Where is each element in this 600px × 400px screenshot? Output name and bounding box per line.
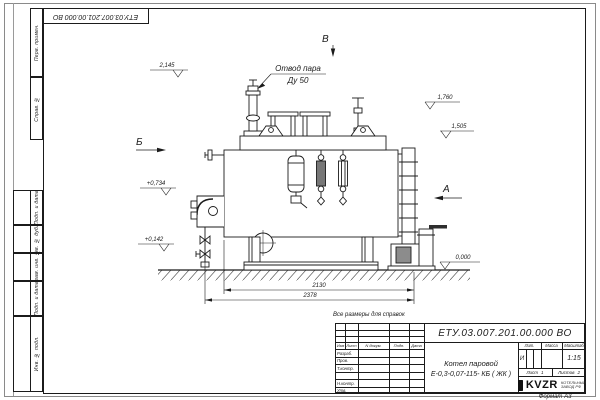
- elevation-1505: 1,505: [440, 124, 474, 138]
- left-wall-nozzle: [205, 150, 224, 160]
- doc-number: ЕТУ.03.007.201.00.000 ВО: [424, 324, 586, 342]
- drain-valves: [196, 227, 210, 267]
- elevation-text: +0,734: [147, 181, 166, 187]
- kvzr-logo-text: KVZR: [526, 379, 558, 391]
- sheets-cell: Листов 2: [552, 368, 586, 376]
- col-header-podp: Подп.: [389, 342, 409, 349]
- sheet-value: 1: [541, 370, 544, 375]
- elevation-0142: +0,142: [138, 237, 174, 251]
- grid-line: [409, 324, 410, 394]
- col-header-docnum: N докум.: [358, 342, 389, 349]
- view-arrow-left: Б: [136, 137, 166, 152]
- view-arrow-right: А: [434, 184, 462, 200]
- col-header-data: Дата: [409, 342, 424, 349]
- row-utv: Утв.: [336, 387, 359, 394]
- kvzr-logo-icon: [518, 380, 523, 391]
- elevation-text: 2,145: [158, 63, 175, 69]
- steam-outlet-label-2: Ду 50: [287, 76, 309, 85]
- product-name-cell: Котел паровой Е-0,3-0,07-115- КБ ( ЖК ): [424, 342, 518, 394]
- drawing-sheet: ЕТУ.03.007.201.00.000 ВО Перв. примен. С…: [0, 0, 600, 400]
- elevation-2145: 2,145: [150, 63, 188, 77]
- scale-header: Масштаб: [562, 342, 586, 349]
- sheet-cell: Лист 1: [518, 368, 552, 376]
- sheets-label: Листов: [558, 370, 574, 375]
- grid-line: [389, 324, 390, 394]
- title-block: Изм Лист N докум. Подп. Дата Разраб. Про…: [335, 323, 585, 393]
- product-name-line1: Котел паровой: [444, 359, 498, 368]
- view-letter: А: [442, 184, 450, 195]
- row-tkontr: Т.контр.: [336, 364, 359, 372]
- elevation-text: 0,000: [455, 255, 471, 261]
- view-letter: Б: [136, 137, 143, 148]
- boiler-body: [224, 136, 398, 237]
- row-razrab: Разраб.: [336, 349, 359, 357]
- sheet-label: Лист: [526, 370, 538, 375]
- logo-cell: KVZR КОТЕЛЬНЫЙ ЗАВОД РФ: [518, 376, 586, 394]
- grid-line: [336, 336, 424, 337]
- view-letter: В: [322, 34, 329, 45]
- elevation-0734: +0,734: [140, 181, 176, 195]
- format-note: Формат А3: [525, 393, 585, 400]
- kvzr-logo-subtext: КОТЕЛЬНЫЙ ЗАВОД РФ: [561, 381, 586, 390]
- top-hatch-right: [300, 112, 330, 136]
- row-nkontr: Н.контр.: [336, 379, 359, 387]
- elevation-text: 1,760: [437, 95, 453, 101]
- dim-overall-text: 2378: [302, 293, 317, 299]
- row-prov: Пров.: [336, 357, 359, 364]
- product-name-line2: Е-0,3-0,07-115- КБ ( ЖК ): [431, 371, 511, 378]
- dim-inner-text: 2130: [311, 283, 326, 289]
- grid-line: [336, 330, 424, 331]
- kvzr-logo-subtext-line2: ЗАВОД РФ: [561, 385, 586, 390]
- sheets-value: 2: [577, 370, 580, 375]
- flue-duct: [398, 148, 418, 244]
- row-blank: [336, 372, 359, 379]
- steam-outlet-pipe: [244, 80, 262, 136]
- reference-note: Все размеры для справок: [333, 311, 428, 319]
- col-header-izm: Изм: [336, 342, 345, 349]
- view-arrow-top: В: [322, 34, 335, 57]
- grid-line: [533, 349, 534, 368]
- burner: [191, 196, 224, 227]
- elevation-0000: 0,000: [440, 255, 480, 269]
- steam-outlet-label-1: Отвод пара: [275, 64, 321, 73]
- scale-value: 1:15: [562, 349, 586, 368]
- elevation-1760: 1,760: [425, 95, 460, 109]
- steam-outlet-callout: Отвод пара Ду 50: [257, 64, 326, 89]
- mass-header: Масса: [541, 342, 562, 349]
- elevation-text: 1,505: [451, 124, 467, 130]
- elevation-text: +0,142: [145, 237, 164, 243]
- col-header-list: Лист: [345, 342, 358, 349]
- lit-header: Лит.: [518, 342, 541, 349]
- lit-value: И: [518, 349, 526, 368]
